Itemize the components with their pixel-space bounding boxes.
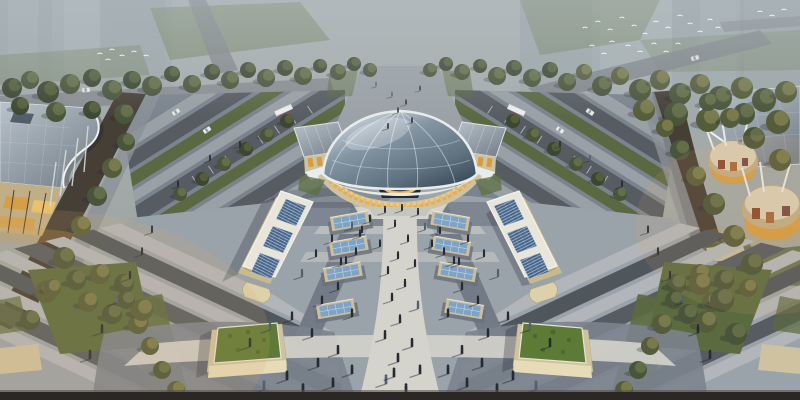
rendering-stage: Aerial dusk architectural rendering of a… [0, 0, 800, 400]
green-roof-pavilion-right [502, 323, 593, 378]
mist-overlay [0, 0, 800, 120]
scene-rendering: Aerial dusk architectural rendering of a… [0, 0, 800, 400]
bottom-road-band [0, 392, 800, 400]
edge-pavilion-right [758, 344, 800, 374]
bottom-curb [0, 390, 800, 392]
